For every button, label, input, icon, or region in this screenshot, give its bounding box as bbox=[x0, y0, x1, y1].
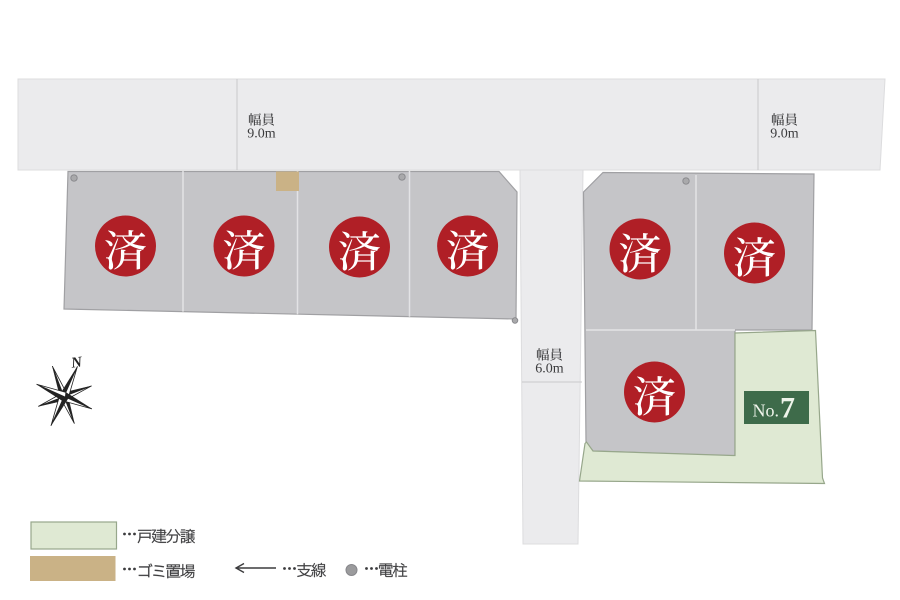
svg-text:6.0m: 6.0m bbox=[535, 362, 564, 377]
svg-text:9.0m: 9.0m bbox=[770, 127, 799, 142]
svg-text:9.0m: 9.0m bbox=[247, 127, 276, 142]
svg-text:No.: No. bbox=[753, 401, 780, 421]
svg-text:7: 7 bbox=[780, 392, 795, 425]
